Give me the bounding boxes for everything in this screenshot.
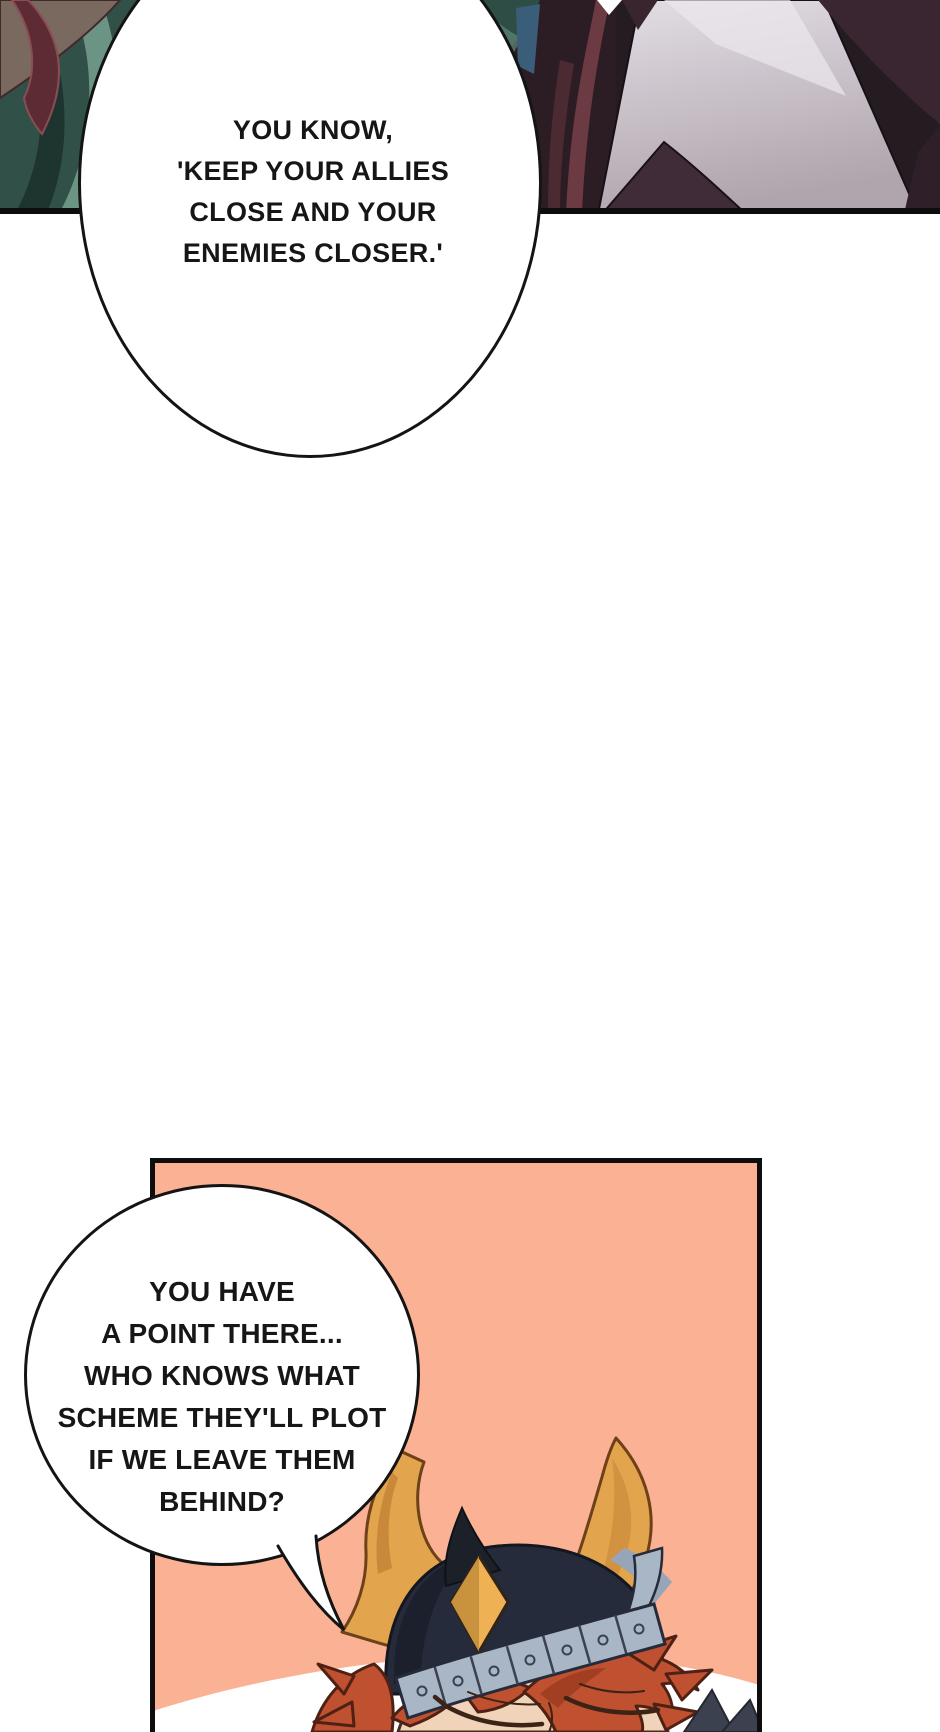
speech-line: BEHIND? [40,1481,404,1523]
bottom-panel-border-top [150,1158,762,1163]
bottom-bubble-text: YOU HAVE A POINT THERE... WHO KNOWS WHAT… [40,1271,404,1523]
speech-line: WHO KNOWS WHAT [40,1355,404,1397]
speech-line: 'KEEP YOUR ALLIES [118,151,508,192]
bottom-panel-border-right [757,1158,762,1732]
comic-page: { "comic": { "top_bubble": { "lines": ["… [0,0,940,1732]
speech-line: ENEMIES CLOSER.' [118,233,508,274]
speech-line: YOU KNOW, [118,110,508,151]
bubble-tail-fill [278,1536,344,1630]
top-bubble-text: YOU KNOW, 'KEEP YOUR ALLIES CLOSE AND YO… [118,110,508,274]
speech-line: SCHEME THEY'LL PLOT [40,1397,404,1439]
speech-line: A POINT THERE... [40,1313,404,1355]
speech-line: IF WE LEAVE THEM [40,1439,404,1481]
speech-line: YOU HAVE [40,1271,404,1313]
speech-line: CLOSE AND YOUR [118,192,508,233]
bottom-bubble-tail [260,1520,360,1640]
